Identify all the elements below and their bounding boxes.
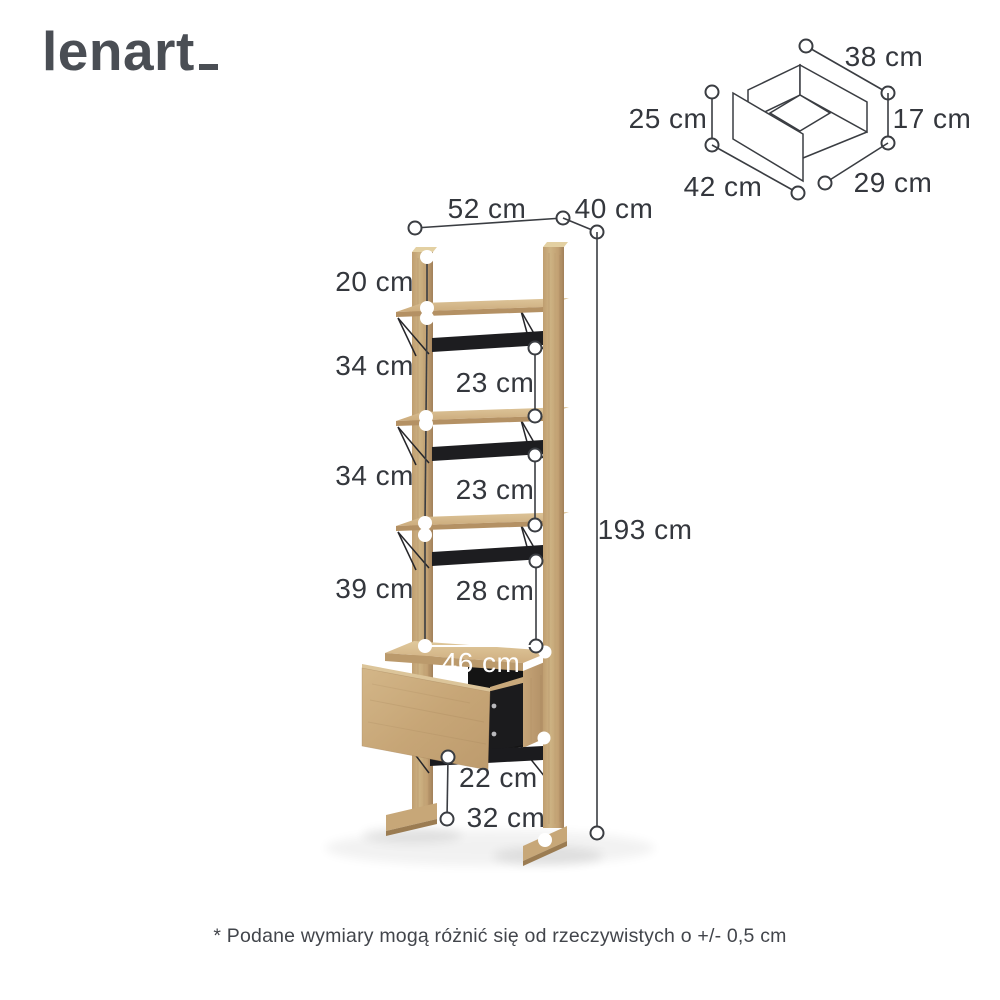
dim-label: 52 cm	[448, 193, 527, 224]
right-upright-top-bevel	[543, 242, 568, 247]
dim-label: 25 cm	[629, 103, 708, 134]
dim-label: 39 cm	[335, 573, 414, 604]
dim-label: 23 cm	[456, 474, 535, 505]
dim-label: 20 cm	[335, 266, 414, 297]
dim-width-top: 52 cm	[409, 193, 570, 235]
dim-label: 32 cm	[467, 802, 546, 833]
footnote: * Podane wymiary mogą różnić się od rzec…	[0, 925, 1000, 948]
dim-label: 17 cm	[893, 103, 972, 134]
dim-clearance-3: 28 cm	[456, 555, 543, 653]
dim-box-bottom-width: 29 cm	[819, 143, 933, 198]
screw-dot	[492, 704, 497, 709]
foot-marker-dot	[538, 833, 552, 847]
screw-dot	[492, 732, 497, 737]
dim-label: 29 cm	[854, 167, 933, 198]
dim-label: 34 cm	[335, 460, 414, 491]
dim-label: 46 cm	[442, 647, 521, 678]
metal-rail-1	[432, 331, 543, 352]
box-bottom-edge	[803, 132, 867, 158]
dim-label: 34 cm	[335, 350, 414, 381]
dim-box-front-height: 25 cm	[629, 86, 719, 152]
dim-box-side-height: 17 cm	[882, 93, 972, 150]
metal-rail-3	[432, 545, 543, 566]
dim-label: 28 cm	[456, 575, 535, 606]
dim-label: 22 cm	[459, 762, 538, 793]
dim-height: 193 cm	[591, 232, 693, 840]
dim-label: 38 cm	[845, 41, 924, 72]
dim-depth-top: 40 cm	[563, 193, 653, 239]
dimension-diagram: 52 cm 40 cm 193 cm 20 cm 34 cm	[0, 0, 1000, 1000]
drawer-box-diagram: 38 cm 17 cm 29 cm 25 cm	[629, 40, 972, 203]
dim-label: 193 cm	[598, 514, 693, 545]
dim-drawer-width: 46 cm	[425, 646, 536, 678]
dim-label: 40 cm	[575, 193, 654, 224]
metal-rail-2	[432, 440, 543, 461]
product-dimension-sheet: lenart	[0, 0, 1000, 1000]
dim-label: 23 cm	[456, 367, 535, 398]
corner-marker-dot	[538, 732, 551, 745]
dim-label: 42 cm	[684, 171, 763, 202]
